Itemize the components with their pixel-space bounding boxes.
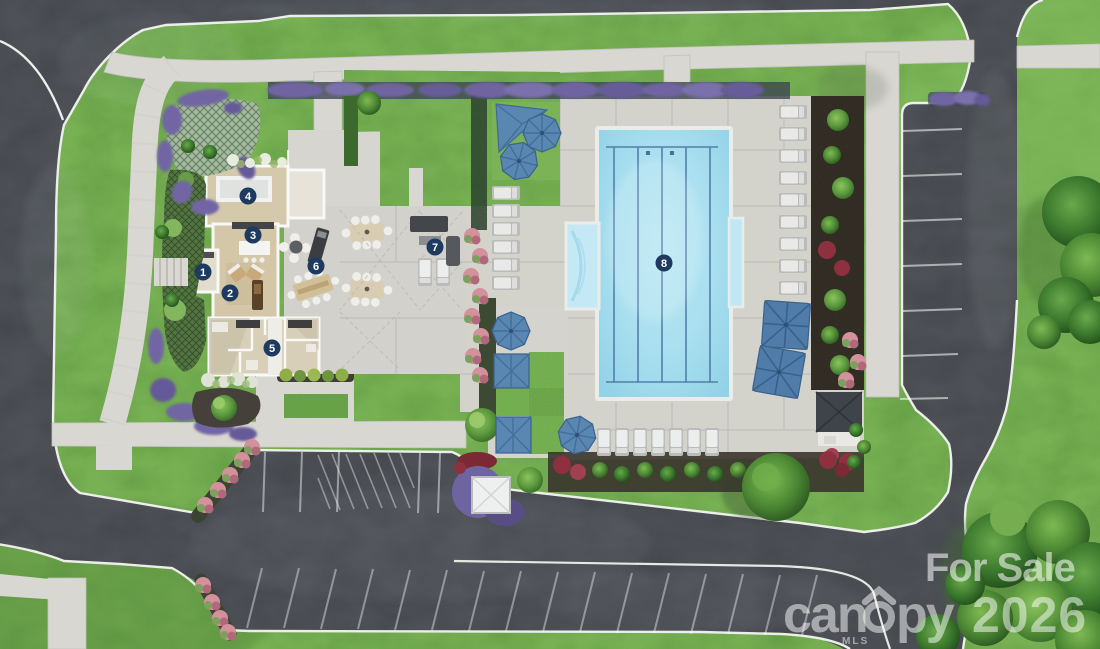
svg-text:5: 5 [269, 343, 275, 355]
svg-text:py: py [896, 586, 955, 644]
svg-text:3: 3 [250, 230, 256, 242]
svg-text:6: 6 [313, 261, 319, 273]
svg-text:4: 4 [245, 191, 252, 203]
svg-text:For Sale: For Sale [925, 546, 1075, 590]
svg-text:MLS: MLS [842, 636, 869, 647]
svg-text:2026: 2026 [972, 587, 1087, 643]
svg-text:1: 1 [200, 267, 206, 279]
svg-text:2: 2 [227, 288, 233, 300]
svg-text:8: 8 [661, 258, 667, 270]
svg-text:7: 7 [432, 242, 438, 254]
